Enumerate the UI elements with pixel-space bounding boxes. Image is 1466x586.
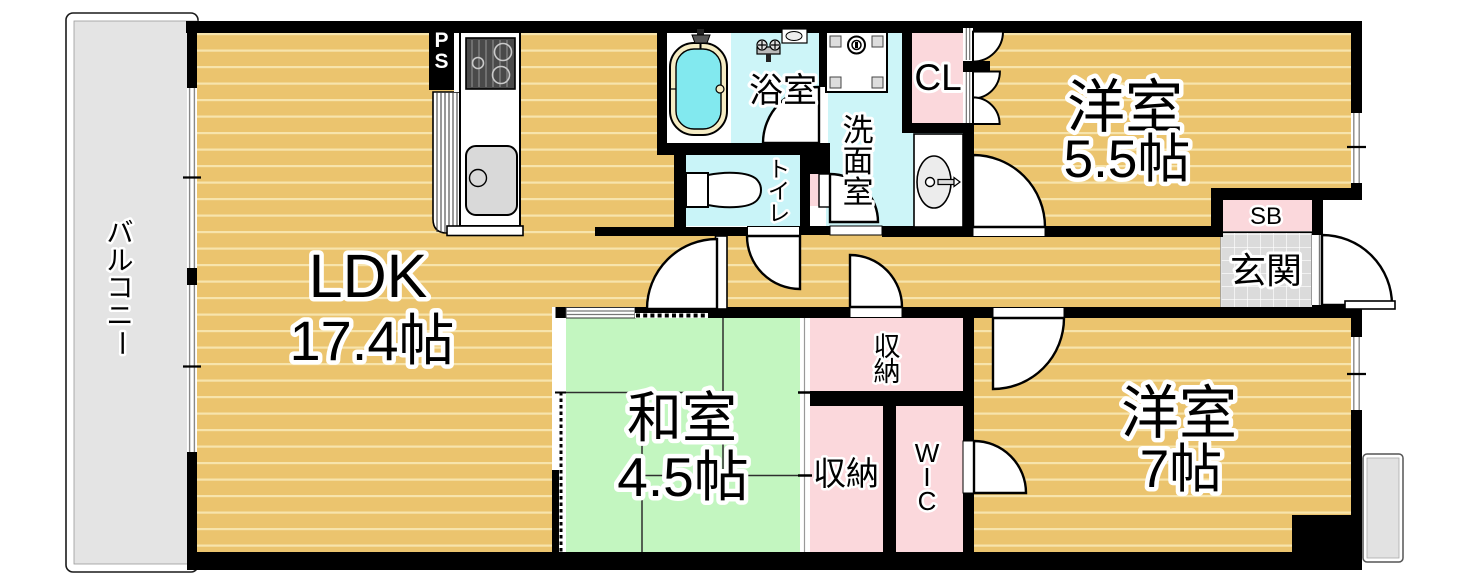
svg-text:S: S (434, 50, 448, 73)
svg-text:洋室: 洋室 (1121, 381, 1237, 446)
svg-text:P: P (434, 29, 448, 52)
svg-text:バ: バ (107, 218, 134, 248)
svg-text:ル: ル (107, 246, 134, 276)
svg-text:ニ: ニ (107, 301, 134, 331)
svg-text:納: 納 (874, 357, 901, 387)
svg-text:コ: コ (107, 273, 134, 303)
svg-text:浴室: 浴室 (749, 72, 817, 110)
svg-text:レ: レ (768, 201, 790, 226)
svg-text:17.4帖: 17.4帖 (290, 309, 455, 372)
svg-text:SB: SB (1250, 203, 1282, 230)
svg-text:4.5帖: 4.5帖 (617, 446, 748, 508)
svg-text:収納: 収納 (813, 455, 879, 492)
svg-text:洗: 洗 (843, 113, 874, 148)
svg-text:CL: CL (914, 57, 961, 98)
svg-text:C: C (918, 486, 937, 516)
svg-text:室: 室 (843, 175, 874, 210)
svg-text:ー: ー (106, 330, 136, 357)
svg-text:玄関: 玄関 (1230, 250, 1302, 291)
svg-text:7帖: 7帖 (1140, 440, 1222, 499)
svg-text:5.5帖: 5.5帖 (1064, 130, 1191, 189)
svg-text:和室: 和室 (627, 387, 737, 449)
svg-text:面: 面 (843, 144, 874, 179)
svg-text:LDK: LDK (309, 242, 428, 310)
